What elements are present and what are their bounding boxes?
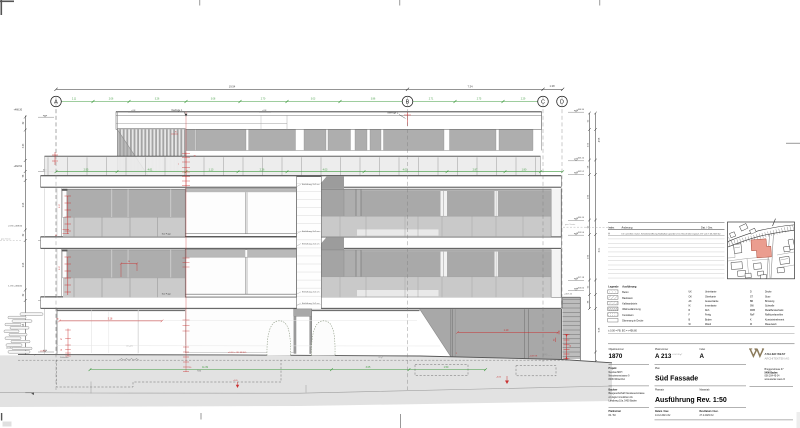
svg-text:Ländiweg 10a, 5400 Baden: Ländiweg 10a, 5400 Baden [609,400,638,402]
svg-text:+466.30: +466.30 [576,109,584,111]
svg-text:Index: Index [700,349,707,351]
svg-text:c/o Egle Immobilien AG: c/o Egle Immobilien AG [609,396,633,399]
svg-text:2.87: 2.87 [473,168,478,171]
svg-text:80: 80 [57,319,59,321]
svg-text:M: M [750,324,752,326]
svg-text:87: 87 [61,338,63,340]
svg-text:± 0.00 = FB. EG = +456.80: ± 0.00 = FB. EG = +456.80 [608,329,637,332]
svg-text:Wärmedämmung: Wärmedämmung [622,308,641,311]
svg-text:Neubau MFH: Neubau MFH [609,372,623,374]
svg-text:Projekt: Projekt [609,367,617,370]
svg-text:Rev.Datum / Gez.: Rev.Datum / Gez. [700,410,719,413]
svg-text:4.55: 4.55 [599,137,601,142]
svg-text:-4.05: -4.05 [496,377,502,379]
svg-text:Baugesellschaft Neuwiesenstras: Baugesellschaft Neuwiesenstrasse [609,392,646,395]
svg-text:5400 Baden: 5400 Baden [765,371,779,374]
svg-text:LG Lamellen ersetzt, Schiebetü: LG Lamellen ersetzt, Schiebetüröffnung S… [622,232,721,235]
svg-text:ARCHITEKTEN AG: ARCHITEKTEN AG [765,356,790,360]
svg-text:Ausführung Rev. 1:50: Ausführung Rev. 1:50 [655,397,727,404]
svg-text:gew. Terrain: gew. Terrain [1,238,11,240]
svg-text:+460.14: +460.14 [576,217,584,219]
svg-text:Entlüftung 2x2 cm: Entlüftung 2x2 cm [302,230,320,233]
svg-text:Plansatz: Plansatz [655,389,665,392]
svg-text:Ilse Fuge: Ilse Fuge [162,293,172,295]
svg-text:Legende: Legende [608,285,619,288]
svg-text:2.71: 2.71 [429,99,434,101]
svg-text:OKgT: OKgT [378,357,384,359]
svg-text:A: A [700,353,705,360]
svg-text:Ilse Fuge: Ilse Fuge [162,234,172,236]
svg-text:Neuwiesenstrasse 9: Neuwiesenstrasse 9 [609,375,631,378]
svg-text:3.05: 3.05 [366,366,371,369]
svg-text:gew. Terrain: gew. Terrain [565,223,575,226]
svg-text:19.54: 19.54 [229,85,236,89]
svg-text:1.10: 1.10 [504,329,509,332]
svg-text:±0.00 = OK FB EG: ±0.00 = OK FB EG [228,352,247,354]
svg-text:14.12.2021 tbz: 14.12.2021 tbz [655,414,671,417]
svg-text:4.03: 4.03 [403,168,408,171]
svg-text:Innenkante: Innenkante [705,305,717,308]
svg-text:Objektnummer: Objektnummer [609,348,624,351]
svg-text:Rad: Rad [197,370,202,372]
svg-text:8406 Winterthur: 8406 Winterthur [609,378,626,381]
svg-text:2.95: 2.95 [84,168,89,171]
svg-text:Entlüftung 2x2 cm: Entlüftung 2x2 cm [302,291,320,294]
svg-text:26: 26 [61,349,63,351]
svg-text:MFB: MFB [750,310,755,312]
svg-text:Bruggerstrasse 37: Bruggerstrasse 37 [765,368,785,371]
svg-text:Plan: Plan [655,368,660,370]
svg-text:Sturz: Sturz [765,295,771,298]
svg-text:4.03: 4.03 [323,168,328,171]
svg-text:Oberkante: Oberkante [705,295,717,298]
svg-text:Metallfensterbank: Metallfensterbank [765,309,784,312]
svg-text:UK: UK [689,292,693,294]
svg-text:Entlüftung 2x2 cm: Entlüftung 2x2 cm [302,183,320,186]
svg-text:AK: AK [689,300,693,303]
svg-text:Ausführung: Ausführung [622,285,637,288]
svg-text:Decke: Decke [765,292,772,294]
svg-text:+456.60: +456.60 [576,287,584,289]
svg-text:Brüstung: Brüstung [765,300,775,303]
svg-text:Aussenkante: Aussenkante [705,300,719,303]
svg-text:3.26: 3.26 [155,99,160,101]
svg-text:90: 90 [128,261,130,263]
svg-text:Datum / Gez.: Datum / Gez. [655,410,669,413]
svg-text:3.43: 3.43 [23,143,25,148]
svg-text:1.50: 1.50 [444,366,449,369]
svg-text:+463.10: +463.10 [576,158,584,160]
svg-text:Fertig: Fertig [705,314,712,317]
svg-text:www.atelier-west.ch: www.atelier-west.ch [765,378,786,381]
svg-text:Kunststein: Kunststein [622,314,634,317]
svg-text:27.2.2023 tbz: 27.2.2023 tbz [700,414,715,417]
svg-text:Index: Index [608,226,615,229]
svg-text:Planformat: Planformat [609,410,621,413]
svg-text:Plannummer: Plannummer [655,348,668,351]
svg-text:2.11: 2.11 [72,99,77,101]
svg-text:+457.15: +457.15 [564,294,573,296]
svg-text:Boden: Boden [705,319,712,321]
svg-text:A 213: A 213 [655,353,672,360]
svg-text:Bauherr: Bauherr [609,390,618,392]
svg-text:Änderung: Änderung [622,226,633,229]
svg-text:Massstab: Massstab [700,389,711,392]
svg-text:-1.08 OK: -1.08 OK [529,356,538,358]
svg-text:+459.56: +459.56 [576,232,584,234]
svg-text:-0.84 OKgT: -0.84 OKgT [672,354,683,356]
svg-text:3.86: 3.86 [371,99,376,101]
svg-text:±0.00: ±0.00 [40,351,46,353]
svg-text:2.96: 2.96 [23,202,25,207]
svg-text:IlseFuge 1: IlseFuge 1 [172,110,183,112]
svg-text:+OK: +OK [262,110,267,112]
svg-text:Unterkante: Unterkante [705,291,717,294]
svg-text:ATELIER WEST: ATELIER WEST [765,352,786,356]
svg-text:Kalksandstein: Kalksandstein [622,303,638,306]
svg-text:+466.30: +466.30 [14,110,23,112]
svg-text:2.06: 2.06 [109,99,114,101]
svg-text:BR: BR [750,301,754,303]
svg-text:2.70: 2.70 [261,99,266,101]
svg-text:Entlüftung 2x2 cm: Entlüftung 2x2 cm [302,302,320,305]
svg-text:7.34: 7.34 [467,84,473,88]
svg-text:1.13: 1.13 [209,168,214,171]
svg-text:Raffstorelamellen: Raffstorelamellen [765,314,784,317]
svg-text:IlseFuge 2: IlseFuge 2 [388,113,399,115]
svg-text:2.75: 2.75 [477,99,482,101]
svg-text:Rohboden: Rohboden [60,357,69,359]
svg-text:4.61: 4.61 [148,168,153,171]
svg-text:2.26: 2.26 [260,168,265,171]
svg-text:Beton: Beton [622,291,629,294]
svg-text:Schwelle: Schwelle [765,306,775,308]
svg-text:1870: 1870 [609,353,623,360]
svg-text:Roh: Roh [705,310,710,312]
svg-text:2.29: 2.29 [521,99,526,101]
svg-text:Dämmung in Decke: Dämmung in Decke [622,320,644,323]
svg-text:3.08: 3.08 [211,99,216,101]
svg-text:6.01: 6.01 [599,247,601,252]
svg-text:056 204 45 04: 056 204 45 04 [765,376,781,378]
svg-text:3.03: 3.03 [311,99,316,101]
svg-text:1.OG +456.60: 1.OG +456.60 [8,285,23,287]
svg-text:+462.52: +462.52 [14,166,23,168]
svg-text:+457.18: +457.18 [576,277,584,279]
svg-text:11.39: 11.39 [202,366,208,369]
svg-text:+462.52: +462.52 [576,171,584,173]
svg-text:Mauerwerk: Mauerwerk [765,323,777,326]
svg-text:2.96: 2.96 [23,262,25,267]
svg-text:1.80: 1.80 [522,168,527,171]
svg-text:5.35: 5.35 [599,327,601,332]
svg-text:Kunststeinelement: Kunststeinelement [765,318,785,321]
svg-text:Süd Fassade: Süd Fassade [655,376,698,383]
svg-text:84 / 60: 84 / 60 [609,415,617,417]
svg-text:Entlüftung 2x2 cm: Entlüftung 2x2 cm [302,242,320,245]
svg-text:Wand: Wand [705,324,712,326]
svg-text:5.18: 5.18 [108,318,113,320]
svg-text:1.38: 1.38 [549,84,555,88]
svg-text:RaF: RaF [750,315,755,317]
svg-text:OK: OK [689,296,693,298]
svg-text:Backstein: Backstein [622,297,633,300]
svg-text:Dat. / Gez.: Dat. / Gez. [701,226,713,229]
svg-text:2.OG +459.56: 2.OG +459.56 [8,225,23,227]
svg-text:+OK: +OK [131,110,136,112]
